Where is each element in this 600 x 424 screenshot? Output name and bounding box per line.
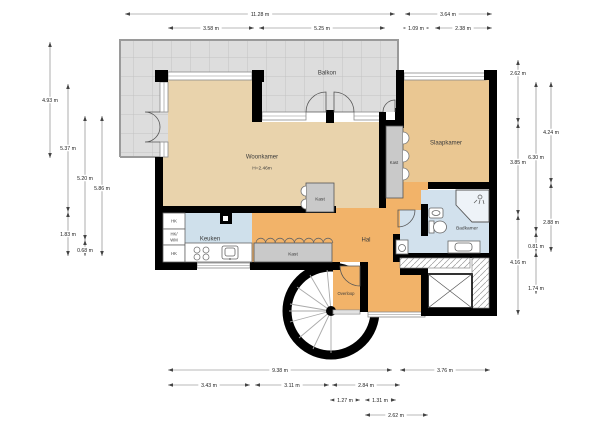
svg-text:5.20 m: 5.20 m [77, 176, 93, 182]
room-overloop [333, 266, 360, 310]
label-badkamer: Badkamer [456, 225, 478, 231]
dimension: 0.68 m [74, 240, 95, 256]
svg-text:3.64 m: 3.64 m [440, 12, 456, 18]
label-hal: Hal [361, 238, 370, 244]
hand-basin [396, 240, 408, 254]
label-overloop: Overloop [338, 291, 356, 296]
floor-plan: Balkon Woonkamer H=2.46m Slaapkamer Badk… [0, 0, 600, 424]
svg-text:2.88 m: 2.88 m [543, 220, 559, 226]
dimension: 3.11 m [255, 382, 329, 389]
svg-text:0.81 m: 0.81 m [528, 244, 544, 250]
dimension: 2.62 m [507, 60, 528, 123]
dimension: 5.86 m [91, 116, 112, 256]
label-hk-bottom: HK [171, 251, 177, 256]
svg-text:3.58 m: 3.58 m [203, 26, 219, 32]
dimension: 9.38 m [168, 367, 392, 374]
dimension: 4.24 m [540, 82, 561, 183]
dimension: 2.38 m [435, 25, 492, 32]
room-slaapkamer [403, 79, 489, 182]
label-keuken: Keuken [200, 237, 220, 243]
svg-text:3.76 m: 3.76 m [437, 368, 453, 374]
svg-text:3.11 m: 3.11 m [284, 383, 299, 389]
svg-text:2.62 m: 2.62 m [388, 413, 404, 419]
svg-text:5.86 m: 5.86 m [94, 186, 110, 192]
sink-icon [222, 246, 238, 260]
dimension: 1.31 m [365, 397, 396, 404]
dimension: 4.16 m [507, 215, 528, 315]
svg-text:1.83 m: 1.83 m [60, 232, 76, 238]
label-hk-mid-2: WM [170, 238, 178, 243]
svg-text:2.62 m: 2.62 m [510, 71, 526, 77]
label-balkon: Balkon [318, 71, 336, 77]
svg-text:3.85 m: 3.85 m [510, 160, 526, 166]
dimension: 2.84 m [332, 382, 400, 389]
label-woonkamer: Woonkamer [246, 155, 278, 161]
shaft-hatched-horizontal [400, 258, 470, 268]
dimension: 5.25 m [259, 25, 385, 32]
svg-text:2.84 m: 2.84 m [358, 383, 374, 389]
label-woonkamer-height: H=2.46m [252, 165, 272, 171]
svg-text:4.16 m: 4.16 m [510, 260, 526, 266]
floor-plan-canvas: Balkon Woonkamer H=2.46m Slaapkamer Badk… [0, 0, 600, 424]
svg-text:1.74 m: 1.74 m [528, 286, 544, 292]
svg-text:5.25 m: 5.25 m [314, 26, 330, 32]
dimension: 3.43 m [168, 382, 250, 389]
svg-text:5.37 m: 5.37 m [60, 146, 76, 152]
svg-text:1.09 m: 1.09 m [408, 26, 424, 32]
svg-text:3.43 m: 3.43 m [201, 383, 217, 389]
vanity-sink [448, 241, 480, 253]
dimension: 4.93 m [39, 42, 60, 158]
svg-text:4.93 m: 4.93 m [42, 98, 58, 104]
svg-text:9.38 m: 9.38 m [272, 368, 288, 374]
svg-text:1.27 m: 1.27 m [337, 398, 353, 404]
elevator-shaft [428, 274, 472, 308]
dimension: 11.28 m [125, 11, 395, 18]
svg-text:11.28 m: 11.28 m [251, 12, 269, 18]
dimension: 3.58 m [168, 25, 254, 32]
dimension: 3.64 m [405, 11, 492, 18]
shaft-hatched-vertical [472, 258, 489, 308]
dimension: 1.09 m [403, 25, 429, 32]
dimension: 5.20 m [74, 116, 95, 240]
dimension: 1.27 m [330, 397, 360, 404]
dimension: 2.88 m [540, 183, 561, 252]
svg-text:0.68 m: 0.68 m [77, 248, 93, 254]
label-slaapkamer: Slaapkamer [430, 141, 462, 147]
dimension: 0.81 m [525, 232, 546, 252]
dimension: 3.76 m [400, 367, 490, 374]
label-hk-top: HK [171, 219, 177, 224]
label-kast-wardrobe: Kast [288, 251, 298, 257]
dimension: 1.74 m [525, 252, 546, 294]
svg-text:4.24 m: 4.24 m [543, 130, 559, 136]
label-kast-bedroom: Kast [390, 160, 399, 165]
label-kast-center: Kast [315, 196, 325, 202]
label-hk-mid-1: HK/ [171, 232, 179, 237]
svg-text:1.31 m: 1.31 m [372, 398, 388, 404]
svg-text:2.38 m: 2.38 m [455, 26, 471, 32]
dimension: 2.62 m [365, 412, 428, 419]
svg-text:6.30 m: 6.30 m [528, 155, 544, 161]
dimension: 3.85 m [507, 123, 528, 215]
dimension: 6.30 m [525, 82, 546, 232]
